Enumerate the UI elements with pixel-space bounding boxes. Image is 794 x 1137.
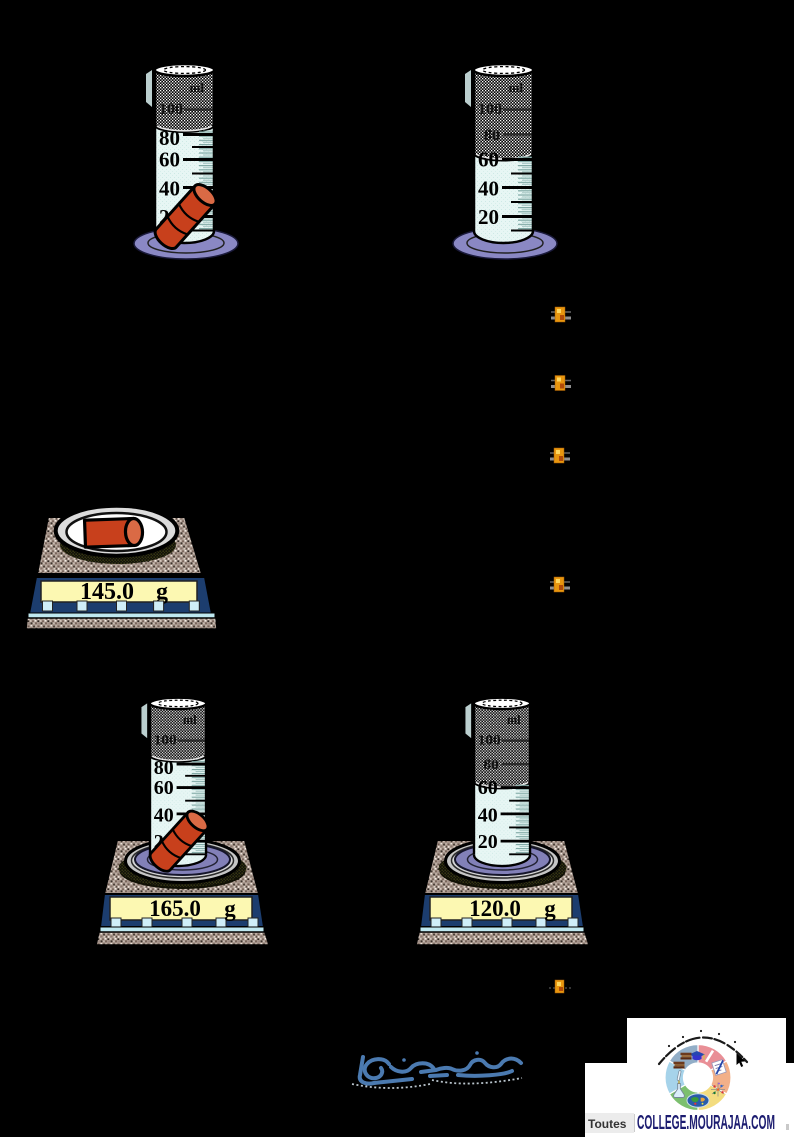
svg-text:165.0: 165.0 — [149, 896, 201, 921]
svg-text:COLLEGE.MOURAJAA.COM: COLLEGE.MOURAJAA.COM — [637, 1112, 775, 1134]
svg-text:Toutes: Toutes — [588, 1117, 627, 1131]
svg-text:120.0: 120.0 — [469, 896, 521, 921]
svg-text:g: g — [544, 896, 556, 921]
svg-text:g: g — [224, 896, 236, 921]
